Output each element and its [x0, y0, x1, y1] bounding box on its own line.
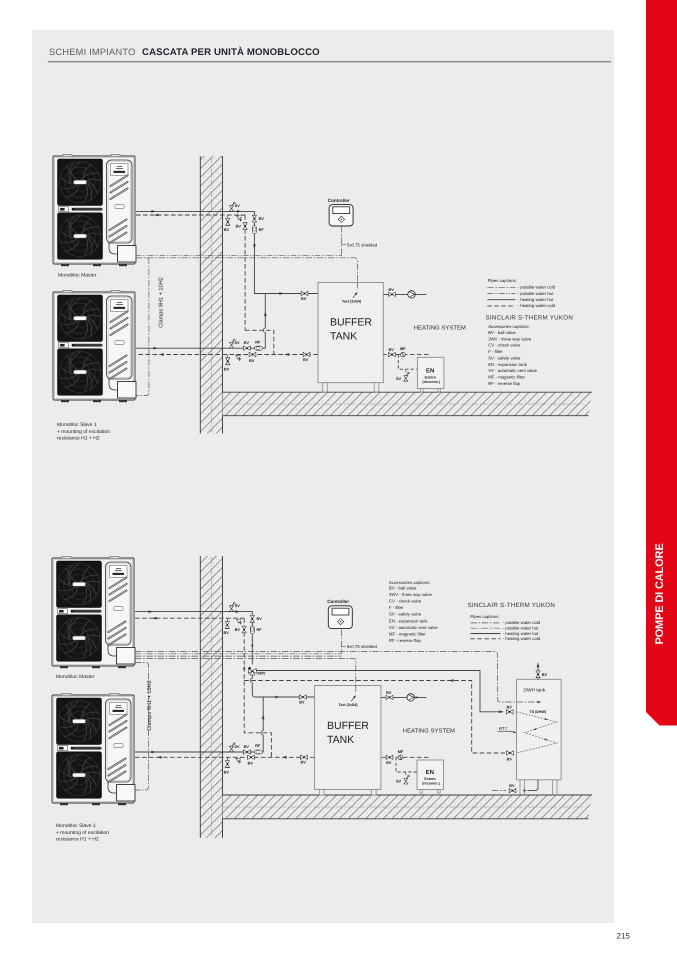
svg-text:BV: BV — [236, 225, 242, 229]
svg-text:BV: BV — [244, 745, 250, 749]
svg-text:3WV: 3WV — [257, 671, 266, 675]
svg-text:BV: BV — [303, 358, 309, 362]
svg-text:Monobloc Master: Monobloc Master — [58, 273, 97, 279]
svg-text:BV: BV — [224, 631, 230, 635]
svg-text:POMPE DI CALORE: POMPE DI CALORE — [654, 543, 666, 644]
svg-text:Clamps 9H1 + 10H2: Clamps 9H1 + 10H2 — [158, 277, 165, 328]
svg-text:F: F — [240, 622, 243, 626]
svg-text:resistance H1 + H2: resistance H1 + H2 — [57, 436, 100, 442]
svg-text:BV - ball valve: BV - ball valve — [488, 330, 516, 335]
svg-text:- potable water cold: - potable water cold — [503, 620, 541, 625]
svg-text:HEATING SYSTEM: HEATING SYSTEM — [403, 727, 455, 734]
svg-text:BV: BV — [507, 705, 513, 709]
svg-text:RF: RF — [257, 628, 263, 632]
svg-text:Controller: Controller — [328, 198, 350, 203]
svg-text:BV: BV — [299, 700, 305, 704]
svg-text:EN - expansion tank: EN - expansion tank — [389, 618, 429, 623]
svg-text:BV: BV — [224, 368, 230, 372]
svg-text:MF - magnetic filter: MF - magnetic filter — [488, 374, 525, 379]
svg-text:BV - ball valve: BV - ball valve — [389, 586, 417, 591]
svg-text:Pipes captions:: Pipes captions: — [470, 614, 499, 619]
svg-text:RT7: RT7 — [499, 726, 508, 731]
svg-text:215: 215 — [617, 932, 631, 941]
svg-text:HEATING SYSTEM: HEATING SYSTEM — [414, 324, 466, 331]
svg-text:Monobloc Slave 1: Monobloc Slave 1 — [57, 422, 97, 428]
svg-text:F - filter: F - filter — [488, 349, 503, 354]
svg-text:BV: BV — [235, 628, 241, 632]
svg-text:EN: EN — [426, 769, 434, 776]
svg-text:SV: SV — [235, 204, 241, 208]
svg-text:MF - magnetic filter: MF - magnetic filter — [389, 631, 426, 636]
svg-text:Pipes captions:: Pipes captions: — [488, 278, 517, 283]
svg-text:BV: BV — [224, 770, 230, 774]
svg-text:BV: BV — [301, 761, 307, 765]
svg-text:BV: BV — [244, 341, 250, 345]
svg-text:CV - check valve: CV - check valve — [389, 599, 422, 604]
svg-text:Monobloc Master: Monobloc Master — [56, 674, 95, 680]
svg-text:Extern: Extern — [424, 777, 436, 781]
svg-text:VV - automatic vent valve: VV - automatic vent valve — [389, 625, 438, 630]
svg-text:Tset (2xD4): Tset (2xD4) — [342, 300, 362, 304]
svg-text:- heating water cold: - heating water cold — [518, 303, 556, 308]
svg-text:F: F — [239, 761, 242, 765]
svg-text:+ mounting of excitation: + mounting of excitation — [56, 830, 109, 836]
svg-text:SINCLAIR S-THERM YUKON: SINCLAIR S-THERM YUKON — [486, 314, 574, 321]
svg-text:5x0,75 shielded: 5x0,75 shielded — [347, 644, 378, 649]
svg-text:- potable water cold: - potable water cold — [518, 285, 556, 290]
svg-text:RF - reverse flap: RF - reverse flap — [488, 381, 521, 386]
svg-text:SV: SV — [235, 604, 241, 608]
svg-text:Accessories captions:: Accessories captions: — [488, 324, 530, 329]
svg-text:RF: RF — [255, 340, 261, 344]
svg-text:BV: BV — [301, 297, 307, 301]
svg-text:CASCATA PER UNITÀ MONOBLOCCO: CASCATA PER UNITÀ MONOBLOCCO — [142, 46, 320, 58]
svg-text:TANK: TANK — [330, 331, 357, 343]
svg-text:Controller: Controller — [327, 599, 349, 604]
svg-text:SV: SV — [235, 745, 241, 749]
svg-text:BV: BV — [224, 228, 230, 232]
svg-text:(recomm.): (recomm.) — [422, 380, 441, 384]
svg-text:BV: BV — [389, 348, 395, 352]
svg-text:VV - automatic vent valve: VV - automatic vent valve — [488, 368, 537, 373]
svg-text:(recomm.): (recomm.) — [422, 781, 441, 785]
svg-text:RF: RF — [255, 744, 261, 748]
svg-text:SV: SV — [396, 377, 402, 381]
svg-text:BUFFER: BUFFER — [330, 317, 372, 329]
svg-text:BV: BV — [509, 784, 515, 788]
svg-text:EN - expansion tank: EN - expansion tank — [488, 362, 528, 367]
svg-text:Monobloc Slave 1: Monobloc Slave 1 — [56, 823, 96, 829]
svg-text:F - filter: F - filter — [389, 605, 404, 610]
svg-text:TS (DHW): TS (DHW) — [530, 710, 547, 714]
svg-text:BV: BV — [542, 673, 548, 677]
svg-text:- potable water hot: - potable water hot — [518, 291, 554, 296]
svg-text:SV - safety valve: SV - safety valve — [389, 612, 422, 617]
svg-text:BV: BV — [259, 217, 265, 221]
svg-text:SINCLAIR S-THERM YUKON: SINCLAIR S-THERM YUKON — [468, 602, 556, 609]
svg-text:BV: BV — [389, 288, 395, 292]
svg-text:BV: BV — [386, 761, 392, 765]
svg-text:Accessories captions:: Accessories captions: — [389, 580, 431, 585]
svg-text:resistance H1 + H2: resistance H1 + H2 — [56, 837, 99, 843]
svg-text:MF: MF — [400, 347, 406, 351]
svg-text:DWH tank: DWH tank — [524, 688, 546, 694]
svg-text:MF: MF — [398, 750, 404, 754]
svg-text:- heating water hot: - heating water hot — [518, 297, 554, 302]
svg-text:3WV - three way valve: 3WV - three way valve — [488, 336, 532, 341]
svg-text:- potable water hot: - potable water hot — [503, 626, 539, 631]
svg-text:CV - check valve: CV - check valve — [488, 343, 521, 348]
svg-text:5x0,75 shielded: 5x0,75 shielded — [347, 242, 378, 247]
svg-text:SV: SV — [396, 780, 402, 784]
svg-text:3WV - three way valve: 3WV - three way valve — [389, 592, 433, 597]
svg-text:- heating water hot: - heating water hot — [503, 631, 539, 636]
svg-text:BV: BV — [257, 617, 263, 621]
svg-text:BV: BV — [507, 757, 513, 761]
svg-text:Extern: Extern — [425, 375, 437, 379]
svg-text:F: F — [240, 218, 243, 222]
svg-text:BUFFER: BUFFER — [327, 720, 369, 732]
svg-text:SV: SV — [235, 341, 241, 345]
svg-text:Tset (2xD4): Tset (2xD4) — [339, 703, 359, 707]
svg-text:SCHEMI IMPIANTO: SCHEMI IMPIANTO — [49, 47, 136, 57]
svg-text:SV - safety valve: SV - safety valve — [488, 355, 521, 360]
svg-text:+ mounting of excitation: + mounting of excitation — [57, 429, 110, 435]
svg-text:RF - reverse flap: RF - reverse flap — [389, 638, 422, 643]
svg-text:Clamps 9H1 + 10H2: Clamps 9H1 + 10H2 — [146, 680, 153, 731]
svg-text:BV: BV — [248, 762, 254, 766]
svg-text:BV: BV — [249, 359, 255, 363]
svg-text:F: F — [239, 358, 242, 362]
svg-text:BV: BV — [386, 691, 392, 695]
svg-text:RF: RF — [259, 228, 265, 232]
svg-text:TANK: TANK — [327, 734, 354, 746]
svg-text:EN: EN — [426, 368, 434, 375]
svg-text:- heating water cold: - heating water cold — [503, 636, 541, 641]
